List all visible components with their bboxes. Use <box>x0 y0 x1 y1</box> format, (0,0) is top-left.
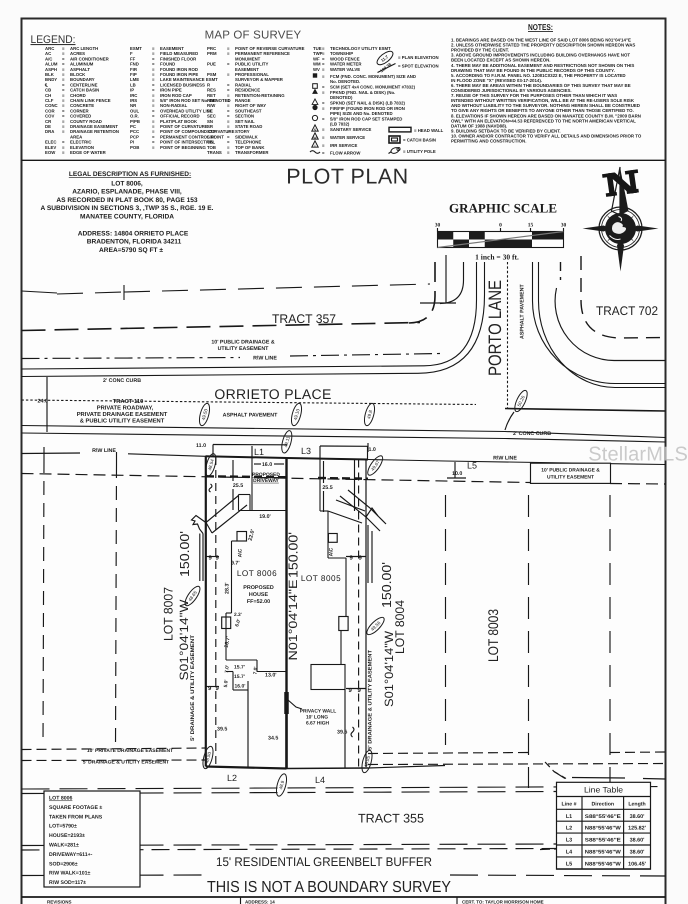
svg-text:L5: L5 <box>467 461 477 471</box>
svg-text:L1: L1 <box>566 814 572 820</box>
svg-text:15.7': 15.7' <box>234 674 245 680</box>
svg-text:PORTO LANE: PORTO LANE <box>485 280 505 376</box>
svg-text:TRANS: TRANS <box>207 150 222 155</box>
svg-text:S88°55'46"E: S88°55'46"E <box>585 814 622 820</box>
svg-text:2' CONC CURB: 2' CONC CURB <box>103 378 141 384</box>
svg-text:10' LONG: 10' LONG <box>306 715 328 721</box>
svg-text:WALK=281±: WALK=281± <box>49 843 79 849</box>
svg-text:5.0': 5.0' <box>223 679 230 687</box>
svg-text:LOT 8006: LOT 8006 <box>49 796 72 802</box>
svg-text:5' DRAINAGE & UTILITY EASEMEN: 5' DRAINAGE & UTILITY EASEMENT <box>368 649 374 750</box>
svg-text:N01°04'14"E: N01°04'14"E <box>286 580 300 661</box>
svg-text:125.82': 125.82' <box>628 826 646 832</box>
svg-text:Direction: Direction <box>592 802 614 808</box>
svg-text:SPKND (SET NAIL & DISK) (LB 78: SPKND (SET NAIL & DISK) (LB 7832) <box>330 101 405 106</box>
svg-text:7.0': 7.0' <box>253 666 260 674</box>
svg-text:ADDRESS: 14: ADDRESS: 14 <box>245 900 275 904</box>
svg-text:= HEAD WALL: = HEAD WALL <box>414 128 444 133</box>
svg-text:N88°55'46"W: N88°55'46"W <box>585 861 621 867</box>
svg-text:106.45': 106.45' <box>628 861 646 867</box>
svg-text:1 inch = 30 ft.: 1 inch = 30 ft. <box>475 253 519 262</box>
svg-text:DENOTED): DENOTED) <box>330 95 353 100</box>
svg-text:AS RECORDED IN PLAT BOOK 80, P: AS RECORDED IN PLAT BOOK 80, PAGE 153 <box>56 197 198 204</box>
svg-text:19.0': 19.0' <box>259 514 271 520</box>
svg-text:= UTILITY POLE: = UTILITY POLE <box>403 149 436 154</box>
svg-text:16.0': 16.0' <box>235 684 246 690</box>
svg-text:WATER SERVICE: WATER SERVICE <box>330 135 365 140</box>
svg-text:PRIVACY WALL: PRIVACY WALL <box>300 709 337 715</box>
svg-text:R\W SOD=117±: R\W SOD=117± <box>49 880 86 886</box>
svg-text:LOT 8005: LOT 8005 <box>301 574 341 583</box>
svg-text:LEGAL DESCRIPTION AS FURNISHED: LEGAL DESCRIPTION AS FURNISHED: <box>69 171 191 178</box>
svg-text:No. DENOTED.: No. DENOTED. <box>330 79 360 84</box>
svg-text:5' DRAINAGE & UTILITY EASEMEN: 5' DRAINAGE & UTILITY EASEMENT <box>190 634 196 741</box>
svg-text:L2: L2 <box>566 826 572 832</box>
svg-text:2' CONC CURB: 2' CONC CURB <box>513 431 551 437</box>
svg-text:LOT=5790±: LOT=5790± <box>49 824 77 830</box>
svg-text:ADDRESS: 14804 ORRIETO PLA: ADDRESS: 14804 ORRIETO PLACE <box>78 231 189 238</box>
svg-text:16.0: 16.0 <box>262 462 272 468</box>
svg-text:24.0: 24.0 <box>38 399 48 405</box>
svg-text:Line #: Line # <box>562 802 577 808</box>
svg-text:150.00': 150.00' <box>177 531 192 577</box>
svg-text:A\C: A\C <box>238 548 244 557</box>
svg-text:11.0: 11.0 <box>196 443 206 449</box>
svg-text:150.00': 150.00' <box>286 532 301 578</box>
svg-text:A SUBDIVISION IN SECTIONS 3, ,: A SUBDIVISION IN SECTIONS 3, ,TWP 35 S.,… <box>41 205 214 212</box>
svg-text:A\C: A\C <box>329 547 335 556</box>
svg-text:NOTES:: NOTES: <box>528 22 553 32</box>
svg-text:38.60': 38.60' <box>630 814 645 820</box>
svg-text:TAKEN FROM PLANS: TAKEN FROM PLANS <box>49 814 103 820</box>
svg-text:L4: L4 <box>315 775 325 785</box>
svg-text:10' PUBLIC DRAINAGE &: 10' PUBLIC DRAINAGE & <box>541 468 600 474</box>
svg-text:FF=52.00: FF=52.00 <box>247 599 270 605</box>
svg-text:L1: L1 <box>254 447 264 457</box>
svg-text:AZARIO, ESPLANADE, PHASE VIII,: AZARIO, ESPLANADE, PHASE VIII, <box>72 189 182 196</box>
svg-text:THIS IS NOT A BOUNDARY SURVEY: THIS IS NOT A BOUNDARY SURVEY <box>207 879 451 896</box>
svg-text:UTILITY EASEMENT: UTILITY EASEMENT <box>547 475 594 481</box>
svg-text:S88°55'46"E: S88°55'46"E <box>585 838 622 844</box>
svg-text:L3: L3 <box>566 838 572 844</box>
svg-text:= SPOT ELEVATION: = SPOT ELEVATION <box>398 64 439 69</box>
svg-text:Line Table: Line Table <box>584 786 624 795</box>
svg-text:PROPOSED: PROPOSED <box>243 585 274 591</box>
svg-text:Length: Length <box>628 802 645 808</box>
svg-text:LOT 8006,: LOT 8006, <box>111 181 143 188</box>
svg-text:25.5: 25.5 <box>233 483 243 489</box>
svg-text:(LB 7832): (LB 7832) <box>330 122 350 127</box>
svg-text:AREA=5790 SQ FT ±: AREA=5790 SQ FT ± <box>99 247 163 254</box>
svg-text:TRACT 110: TRACT 110 <box>113 398 144 405</box>
svg-text:TRANSFORMER: TRANSFORMER <box>235 150 269 155</box>
svg-text:GRAPHIC SCALE: GRAPHIC SCALE <box>449 201 557 216</box>
svg-text:SCM (SET 4x4 CONC. MONUMENT #7: SCM (SET 4x4 CONC. MONUMENT #7832) <box>330 85 416 90</box>
svg-text:EDGE OF WATER: EDGE OF WATER <box>70 150 107 155</box>
svg-text:38.60': 38.60' <box>630 850 645 856</box>
svg-text:7.0': 7.0' <box>224 665 231 673</box>
svg-text:10' PUBLIC DRAINAGE &: 10' PUBLIC DRAINAGE & <box>211 340 275 346</box>
svg-text:MANATEE COUNTY, FLORIDA: MANATEE COUNTY, FLORIDA <box>80 213 174 220</box>
svg-text:BRADENTON, FLORIDA 34211: BRADENTON, FLORIDA 34211 <box>87 239 182 246</box>
svg-text:R\W WALK=101±: R\W WALK=101± <box>49 871 90 877</box>
svg-text:REVISIONS: REVISIONS <box>47 900 72 904</box>
svg-text:34.5: 34.5 <box>268 736 278 742</box>
svg-text:SQUARE FOOTAGE ±: SQUARE FOOTAGE ± <box>49 805 102 811</box>
svg-text:L3: L3 <box>301 446 311 456</box>
svg-text:R\W LINE: R\W LINE <box>92 448 116 454</box>
svg-text:PRIVATE ROADWAY,: PRIVATE ROADWAY, <box>97 405 154 412</box>
svg-text:38.60': 38.60' <box>630 838 645 844</box>
svg-text:TRACT 355: TRACT 355 <box>358 812 424 826</box>
svg-text:0: 0 <box>499 223 502 229</box>
svg-text:39.5: 39.5 <box>337 730 347 736</box>
svg-text:ORRIETO PLACE: ORRIETO PLACE <box>214 386 331 402</box>
svg-text:FLOW ARROW: FLOW ARROW <box>330 151 361 156</box>
svg-text:15: 15 <box>528 223 534 229</box>
svg-text:PRM: PRM <box>207 51 217 56</box>
svg-text:& PUBLIC UTILITY EASEMENT: & PUBLIC UTILITY EASEMENT <box>80 418 165 425</box>
svg-text:28.3': 28.3' <box>225 582 231 594</box>
svg-text:ASPHALT PAVEMENT: ASPHALT PAVEMENT <box>223 413 278 419</box>
svg-text:MAP OF SURVEY: MAP OF SURVEY <box>205 30 302 42</box>
svg-text:PUE: PUE <box>207 62 216 67</box>
svg-text:HOUSE: HOUSE <box>249 592 269 598</box>
svg-text:S01°04'14"W: S01°04'14"W <box>177 599 191 681</box>
svg-text:EOW: EOW <box>45 150 56 155</box>
svg-text:1.0: 1.0 <box>369 447 376 453</box>
svg-text:PERMITTING AND CONSTRUCTION.: PERMITTING AND CONSTRUCTION. <box>451 139 526 144</box>
svg-text:I: I <box>315 144 316 148</box>
svg-text:DRIVEWAY=611+-: DRIVEWAY=611+- <box>49 852 93 858</box>
svg-text:39.5: 39.5 <box>217 727 227 733</box>
svg-text:25.5: 25.5 <box>322 485 332 491</box>
svg-text:POB: POB <box>130 145 139 150</box>
svg-text:R\W LINE: R\W LINE <box>493 456 517 462</box>
svg-text:N88°55'46"W: N88°55'46"W <box>585 826 621 832</box>
svg-text:LEGEND:: LEGEND: <box>31 34 76 46</box>
svg-text:30: 30 <box>561 223 567 229</box>
svg-text:WV: WV <box>313 67 320 72</box>
svg-text:15.7': 15.7' <box>234 665 245 671</box>
svg-text:PSM: PSM <box>207 72 217 77</box>
svg-text:5' DRAINAGE & UTILITY EASE: 5' DRAINAGE & UTILITY EASEMENT <box>83 760 169 766</box>
svg-text:CERT. TO: TAYLOR MORRISON HOM: CERT. TO: TAYLOR MORRISON HOME <box>462 900 544 904</box>
svg-text:L5: L5 <box>566 861 572 867</box>
svg-text:L2: L2 <box>227 773 237 783</box>
svg-text:StellarMLS: StellarMLS <box>588 444 688 466</box>
svg-text:UTILITY EASEMENT: UTILITY EASEMENT <box>218 346 270 352</box>
svg-text:6.67 HIGH: 6.67 HIGH <box>306 721 330 727</box>
svg-text:DRIVEWAY: DRIVEWAY <box>253 478 279 484</box>
svg-text:9.7': 9.7' <box>231 561 240 567</box>
svg-text:= PLAN ELEVATION: = PLAN ELEVATION <box>398 55 439 60</box>
svg-text:30: 30 <box>435 223 441 229</box>
svg-text:DRA: DRA <box>45 129 54 134</box>
svg-text:N88°55'46"W: N88°55'46"W <box>585 850 621 856</box>
svg-text:PROPOSED: PROPOSED <box>252 472 280 478</box>
svg-text:LOT 8004: LOT 8004 <box>393 600 407 654</box>
svg-text:PIPE) SIZE AND No. DENOTED: PIPE) SIZE AND No. DENOTED <box>330 111 393 116</box>
svg-text:15' RESIDENTIAL GREENBELT B: 15' RESIDENTIAL GREENBELT BUFFER <box>216 855 432 869</box>
svg-text:2.3': 2.3' <box>234 612 242 618</box>
svg-text:SANITARY SERVICE: SANITARY SERVICE <box>330 127 372 132</box>
svg-text:WATER VALVE: WATER VALVE <box>330 67 360 72</box>
svg-text:IRR SERVICE: IRR SERVICE <box>330 143 358 148</box>
svg-text:13.0': 13.0' <box>265 673 277 679</box>
svg-text:L4: L4 <box>566 850 572 856</box>
svg-text:SOD=2906±: SOD=2906± <box>49 861 78 867</box>
svg-text:150.00': 150.00' <box>379 562 394 608</box>
svg-text:10' PRIVATE DRAINAGE EASEMEN: 10' PRIVATE DRAINAGE EASEMENT <box>87 748 173 754</box>
svg-text:= CATCH BASIN: = CATCH BASIN <box>403 138 436 143</box>
svg-text:LOT 8007: LOT 8007 <box>162 587 176 641</box>
svg-text:10.0: 10.0 <box>452 471 462 477</box>
svg-text:POINT OF BEGINNING: POINT OF BEGINNING <box>160 145 206 150</box>
svg-text:ASPHALT PAVEMENT: ASPHALT PAVEMENT <box>520 284 526 339</box>
svg-text:TRACT 702: TRACT 702 <box>596 304 658 318</box>
svg-text:PLOT PLAN: PLOT PLAN <box>286 165 408 189</box>
svg-text:R\W LINE: R\W LINE <box>253 356 277 362</box>
svg-text:PRIVATE DRAINAGE EASEMENT: PRIVATE DRAINAGE EASEMENT <box>77 411 168 418</box>
svg-text:LOT 8003: LOT 8003 <box>485 609 501 662</box>
svg-text:HOUSE=2193±: HOUSE=2193± <box>49 833 85 839</box>
svg-text:LOT 8006: LOT 8006 <box>237 569 277 578</box>
